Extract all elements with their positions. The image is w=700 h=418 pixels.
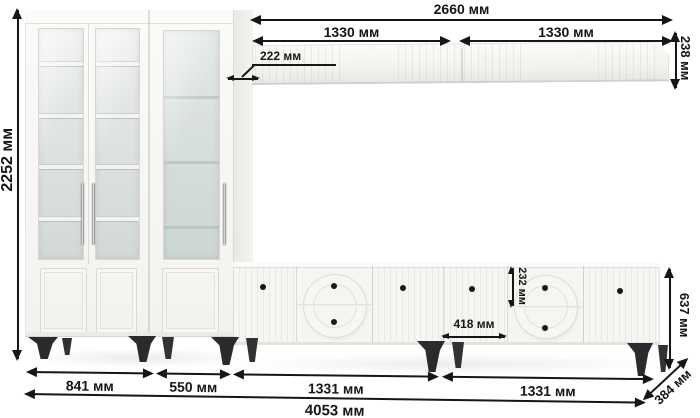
dim-tv-height-label: 637 мм [677,275,691,355]
door-center-seam [88,24,89,264]
door-handle [81,183,84,245]
shelf-fluting [398,44,459,82]
shelf-fluting [598,42,660,80]
dim-shelf-left: 1330 мм [252,25,451,47]
tv-door-fluted [233,267,296,343]
knob [400,285,406,291]
knob [542,285,548,291]
glass-door-left [38,28,84,260]
tv-seam [372,266,373,344]
tv-bottom-rail [233,342,660,345]
cabinet-side-panel [233,10,253,262]
lower-door-panel [96,268,137,333]
dim-tv-height: 637 мм [664,267,676,370]
knob [617,288,623,294]
dim-tv-door-width-label: 418 мм [441,318,507,331]
knob [542,325,548,331]
tall-cabinet-unit [25,10,252,337]
knob [260,284,266,290]
door-handle [92,183,95,245]
dim-drawer-height: 232 мм [508,266,517,308]
shelf-fluting [464,44,524,82]
glass-reflection [39,29,83,259]
dim-shelf-depth-label: 222 мм [260,50,301,63]
knob [469,286,475,292]
tv-seam [583,266,584,344]
dim-shelf-depth-arrow [226,74,260,84]
cabinet-cornice [25,10,252,24]
glass-door-middle [95,28,140,260]
dim-total-height-label: 2252 мм [0,108,17,212]
dim-shelf-right: 1330 мм [459,25,673,47]
dim-shelf-height-label: 238 мм [678,18,692,98]
cabinet-section-seam [148,10,150,337]
dim-tv-door-width: 418 мм [441,332,507,342]
dim-total-height: 2252 мм [12,8,24,361]
dim-shelf-height: 238 мм [670,31,682,90]
shelf-center-seam [461,48,463,81]
knob [331,283,337,289]
furniture-dimension-diagram: 2252 мм 2660 мм 1330 мм 1330 мм 238 мм 2… [0,0,700,418]
leader-line [252,64,336,66]
door-handle [223,183,226,245]
glass-reflection [96,29,139,259]
lower-door-panel [162,268,219,333]
knob [331,319,337,325]
dim-drawer-height-label: 232 мм [516,251,528,321]
dim-shelf-total: 2660 мм [250,2,673,26]
drawer-divider [297,304,371,306]
glass-reflection [164,31,219,259]
display-glass-door [163,30,220,260]
tv-door-fluted [583,267,660,343]
lower-door-panel [40,268,87,333]
